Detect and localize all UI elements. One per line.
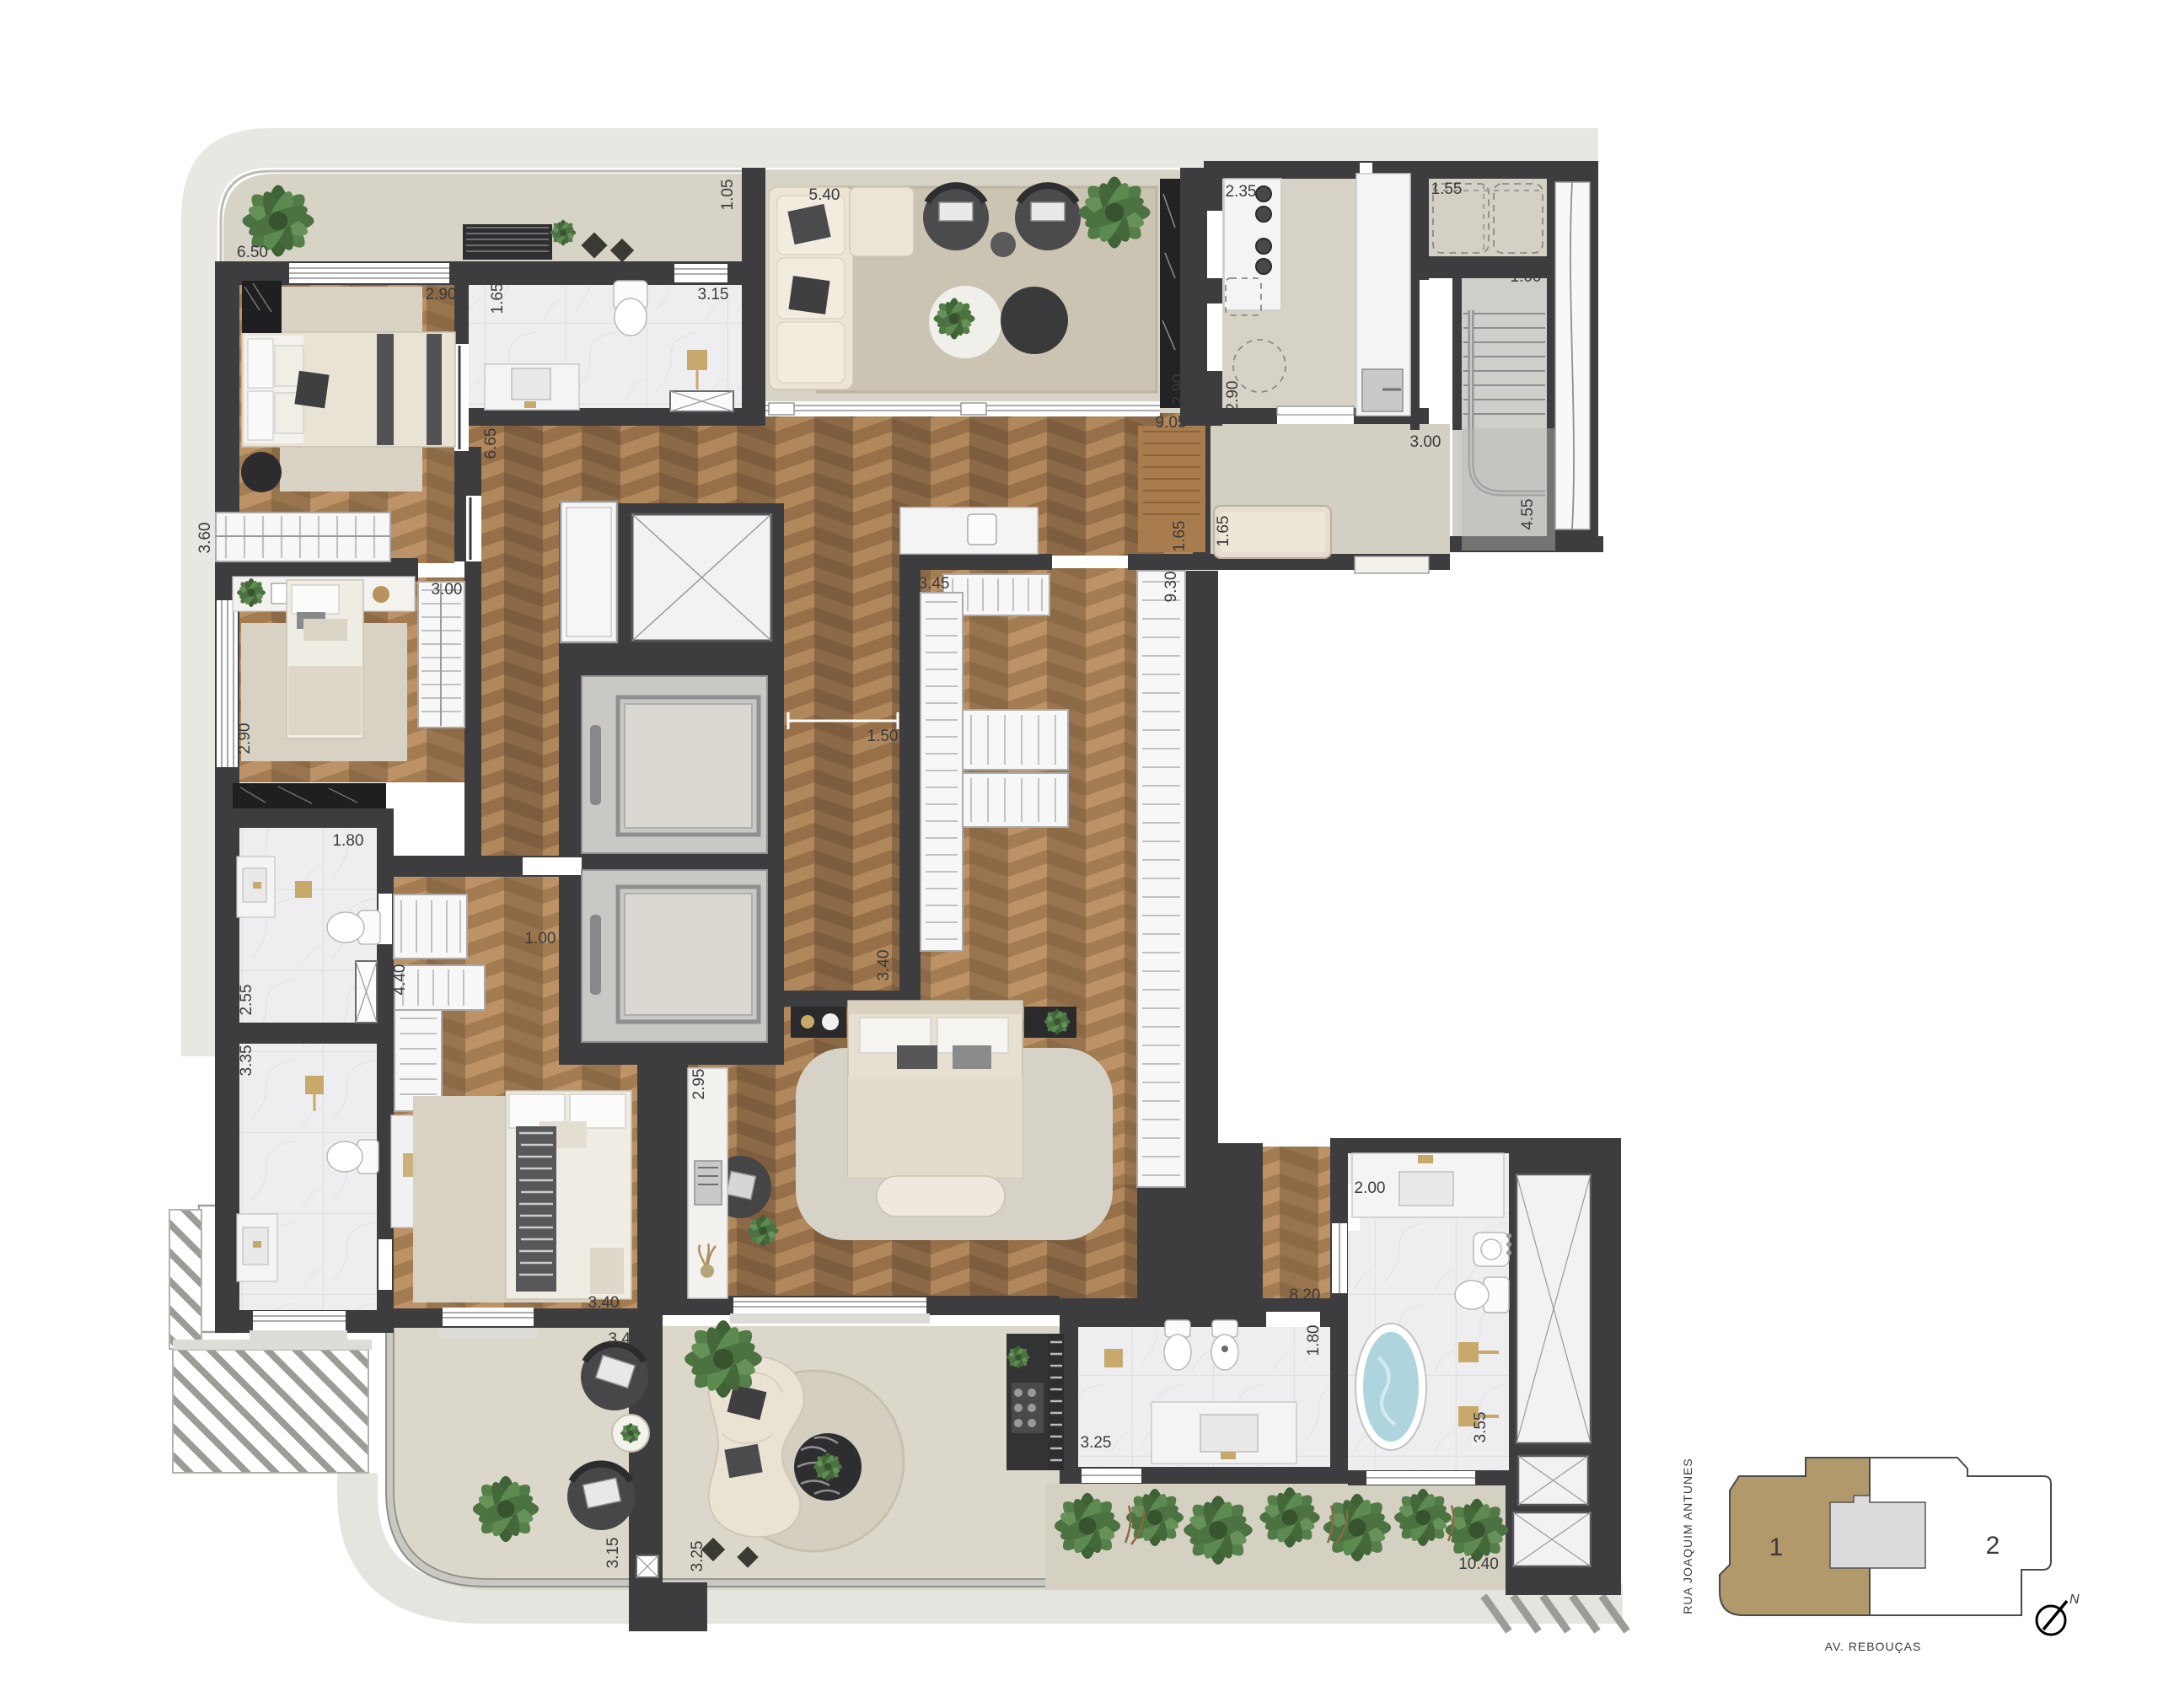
- svg-text:1.55: 1.55: [1431, 180, 1463, 198]
- svg-text:3.55: 3.55: [1472, 1412, 1490, 1443]
- svg-text:1.65: 1.65: [1171, 521, 1189, 552]
- svg-text:1.00: 1.00: [525, 930, 556, 948]
- svg-text:1.80: 1.80: [1305, 1325, 1323, 1356]
- svg-text:N: N: [2069, 1593, 2080, 1607]
- svg-text:3.00: 3.00: [1410, 433, 1441, 451]
- svg-text:2.90: 2.90: [1170, 374, 1188, 406]
- svg-text:1: 1: [1769, 1533, 1784, 1561]
- svg-text:3.35: 3.35: [238, 1045, 255, 1077]
- svg-text:5.40: 5.40: [809, 186, 840, 204]
- svg-text:2.95: 2.95: [690, 1069, 708, 1100]
- svg-text:3.60: 3.60: [196, 523, 214, 554]
- svg-text:9.05: 9.05: [1156, 414, 1187, 432]
- svg-text:1.50: 1.50: [867, 728, 899, 745]
- svg-text:9.30: 9.30: [1162, 572, 1180, 603]
- svg-text:8.20: 8.20: [1290, 1286, 1321, 1304]
- svg-text:AV. REBOUÇAS: AV. REBOUÇAS: [1825, 1640, 1922, 1653]
- svg-text:3.25: 3.25: [689, 1541, 706, 1572]
- svg-text:1.00: 1.00: [1511, 268, 1542, 286]
- svg-text:1.80: 1.80: [333, 832, 364, 850]
- svg-text:2.35: 2.35: [1226, 183, 1257, 201]
- svg-text:3.15: 3.15: [698, 286, 729, 303]
- svg-text:1.65: 1.65: [1215, 516, 1232, 547]
- svg-text:2: 2: [1986, 1532, 2000, 1560]
- svg-text:2.55: 2.55: [238, 985, 255, 1016]
- svg-text:2.90: 2.90: [236, 723, 254, 755]
- svg-text:3.15: 3.15: [604, 1538, 622, 1569]
- svg-text:4.40: 4.40: [391, 964, 409, 996]
- svg-text:3.45: 3.45: [919, 575, 950, 593]
- svg-text:1.65: 1.65: [489, 283, 507, 314]
- svg-text:3.45: 3.45: [609, 1330, 640, 1348]
- svg-text:6.65: 6.65: [482, 428, 500, 459]
- svg-text:3.25: 3.25: [1081, 1434, 1112, 1452]
- svg-text:6.50: 6.50: [237, 244, 268, 261]
- svg-text:4.55: 4.55: [1519, 499, 1537, 530]
- svg-text:10.40: 10.40: [1458, 1555, 1499, 1573]
- svg-text:2.90: 2.90: [1224, 381, 1242, 412]
- svg-text:2.00: 2.00: [1355, 1179, 1386, 1197]
- svg-text:3.40: 3.40: [875, 950, 893, 981]
- svg-text:3.00: 3.00: [432, 581, 463, 599]
- svg-text:1.05: 1.05: [719, 180, 737, 211]
- svg-text:3.40: 3.40: [588, 1294, 620, 1312]
- svg-text:2.90: 2.90: [426, 286, 457, 303]
- svg-text:RUA JOAQUIM ANTUNES: RUA JOAQUIM ANTUNES: [1681, 1458, 1694, 1614]
